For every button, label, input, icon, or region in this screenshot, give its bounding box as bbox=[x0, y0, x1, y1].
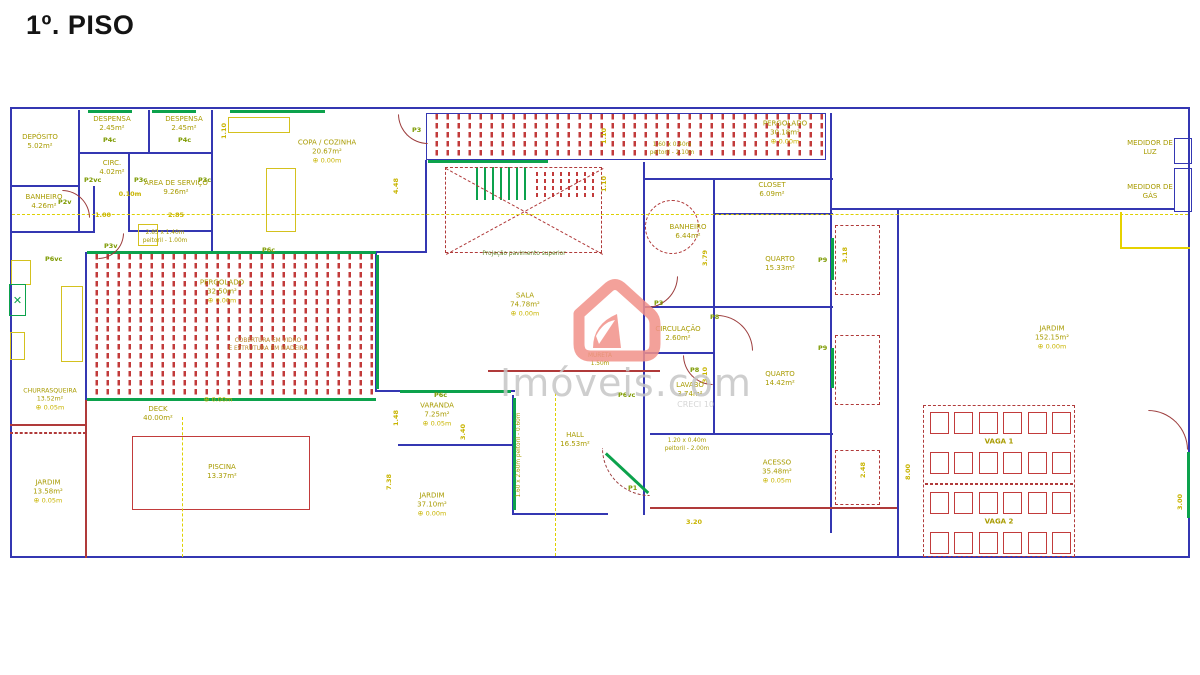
room-label-hall: HALL16.53m² bbox=[560, 431, 590, 449]
dashed-line bbox=[10, 432, 86, 434]
room-label-closet: CLOSET6.09m² bbox=[758, 181, 785, 199]
dimension-text: 3.79 bbox=[701, 250, 709, 266]
window-sill bbox=[428, 160, 548, 163]
room-label-pergolado-dir: PERGOLADO30.18m²⊕ 0.00m bbox=[763, 119, 807, 146]
level-icon: ⊕ bbox=[208, 297, 214, 305]
guide-line bbox=[1120, 212, 1122, 248]
room-label-banheiro-servico: BANHEIRO4.26m² bbox=[26, 193, 63, 211]
paver-block bbox=[930, 412, 949, 434]
paver-block bbox=[979, 452, 998, 474]
level-icon: ⊕ bbox=[313, 157, 319, 165]
grill-glyph: ✕ bbox=[13, 294, 22, 307]
room-label-jardim-fundos: JARDIM13.58m²⊕ 0.05m bbox=[33, 478, 63, 505]
window-note-lavabo: 1.20 x 0.40mpeitoril - 2.00m bbox=[665, 438, 710, 454]
wall-segment bbox=[10, 231, 95, 233]
meter-box-gas bbox=[1174, 168, 1192, 212]
paver-block bbox=[930, 532, 949, 554]
grill-icon: ✕ bbox=[9, 284, 26, 316]
room-label-deposito: DEPÓSITO5.02m² bbox=[22, 133, 58, 151]
centerline bbox=[12, 214, 1188, 215]
wall-segment bbox=[830, 113, 832, 533]
room-label-quarto1: QUARTO15.33m² bbox=[765, 255, 795, 273]
paver-block bbox=[1003, 532, 1022, 554]
door-code-p4c: P4c bbox=[103, 136, 116, 144]
door-code-p6c: P6c bbox=[262, 246, 275, 254]
dimension-text: 1.00 bbox=[95, 211, 111, 219]
dimension-text: 3.20 bbox=[686, 518, 702, 526]
paver-block bbox=[1028, 532, 1047, 554]
wall-segment bbox=[78, 152, 213, 154]
parking-divider bbox=[925, 483, 1073, 485]
wall-segment bbox=[832, 208, 1174, 210]
masonry-line bbox=[650, 507, 897, 509]
window-note-servico: 2.85 x 1.40mpeitoril - 1.00m bbox=[143, 230, 188, 246]
watermark-brand: Imóveis.com bbox=[500, 364, 730, 402]
window-sill bbox=[831, 348, 834, 388]
window-sill bbox=[230, 110, 325, 113]
wall-segment bbox=[148, 110, 150, 152]
wall-segment bbox=[897, 210, 899, 558]
paver-block bbox=[954, 492, 973, 514]
paver-block bbox=[1028, 492, 1047, 514]
page-title: 1º. PISO bbox=[26, 10, 134, 41]
door-code-p6c: P6c bbox=[434, 391, 447, 399]
room-label-churrasqueira: CHURRASQUEIRA13.52m²⊕ 0.05m bbox=[23, 387, 76, 412]
dimension-text: 0.10m bbox=[119, 190, 142, 198]
paver-block bbox=[954, 412, 973, 434]
paver-block bbox=[1052, 492, 1071, 514]
wall-segment bbox=[643, 178, 833, 180]
room-label-despensa1: DESPENSA2.45m² bbox=[93, 115, 131, 133]
kitchen-island bbox=[266, 168, 296, 232]
level-icon: ⊕ bbox=[763, 477, 769, 485]
door-code-p9: P9 bbox=[818, 344, 827, 352]
deck-level: ⊕ 0.00m bbox=[204, 395, 233, 404]
wall-segment bbox=[10, 185, 80, 187]
window-sill bbox=[152, 110, 196, 113]
room-label-medidor-gas: MEDIDOR DE GÁS bbox=[1126, 183, 1174, 201]
paver-block bbox=[1003, 412, 1022, 434]
paver-block bbox=[979, 412, 998, 434]
wall-segment bbox=[425, 160, 427, 252]
paver-block bbox=[1052, 412, 1071, 434]
window-sill bbox=[88, 110, 132, 113]
paver-block bbox=[954, 452, 973, 474]
level-icon: ⊕ bbox=[418, 510, 424, 518]
room-label-piscina: PISCINA13.37m² bbox=[207, 463, 237, 481]
kitchen-counter bbox=[228, 117, 290, 133]
paver-block bbox=[1028, 412, 1047, 434]
fixture-counter bbox=[10, 332, 25, 360]
wall-segment bbox=[512, 513, 608, 515]
watermark: Imóveis.com CRECI 10 bbox=[500, 278, 730, 409]
dimension-text: 1.10 bbox=[600, 176, 608, 192]
paver-block bbox=[1028, 452, 1047, 474]
room-label-jardim-lateral: JARDIM152.15m²⊕ 0.00m bbox=[1035, 324, 1069, 351]
level-icon: ⊕ bbox=[34, 497, 40, 505]
pergolado-note: COBERTURA EM VIDROE ESTRUTURA EM MADEIRA bbox=[228, 338, 307, 354]
door-code-p2v: P2v bbox=[58, 198, 72, 206]
window-sill bbox=[831, 238, 834, 280]
window-sill bbox=[1187, 452, 1190, 518]
ac-projection bbox=[835, 450, 880, 505]
door-code-p1: P1 bbox=[628, 484, 637, 492]
guide-line bbox=[1120, 247, 1190, 249]
dimension-text: 3.00 bbox=[1176, 494, 1184, 510]
door-code-p6vc: P6vc bbox=[45, 255, 62, 263]
door-code-p3: P3 bbox=[412, 126, 421, 134]
room-label-banheiro-suite: BANHEIRO6.44m² bbox=[670, 223, 707, 241]
wall-segment bbox=[398, 444, 514, 446]
room-label-medidor-luz: MEDIDOR DE LUZ bbox=[1126, 139, 1174, 157]
paver-block bbox=[979, 532, 998, 554]
room-label-pergolado-esq: PERGOLADO32.50m²⊕ 0.00m bbox=[200, 278, 244, 305]
dimension-text: 2.48 bbox=[859, 462, 867, 478]
door-code-p2vc: P2vc bbox=[84, 176, 101, 184]
room-label-vaga2: VAGA 2 bbox=[985, 517, 1014, 526]
dimension-text: 2.85 bbox=[168, 211, 184, 219]
wall-segment bbox=[650, 433, 833, 435]
meter-box-luz bbox=[1174, 138, 1192, 164]
level-icon: ⊕ bbox=[36, 404, 42, 412]
room-label-acesso: ACESSO35.48m²⊕ 0.05m bbox=[762, 458, 792, 485]
room-label-copa: COPA / COZINHA20.67m²⊕ 0.00m bbox=[298, 138, 356, 165]
wall-segment bbox=[93, 186, 95, 233]
room-label-deck: DECK40.00m² bbox=[143, 405, 173, 423]
door-code-p4c: P4c bbox=[178, 136, 191, 144]
paver-block bbox=[930, 452, 949, 474]
dimension-text: 3.18 bbox=[841, 247, 849, 263]
stair-projection-note: Projeção pavimento superior bbox=[482, 251, 565, 259]
fixture-counter bbox=[61, 286, 83, 362]
dimension-text: 4.48 bbox=[392, 178, 400, 194]
room-label-despensa2: DESPENSA2.45m² bbox=[165, 115, 203, 133]
pergolado-hatch-left bbox=[87, 254, 375, 398]
window-sill bbox=[400, 390, 511, 393]
level-icon: ⊕ bbox=[771, 138, 777, 146]
paver-block bbox=[1052, 532, 1071, 554]
upper-floor-projection bbox=[445, 167, 602, 253]
house-logo-icon bbox=[563, 278, 667, 362]
paver-block bbox=[1003, 492, 1022, 514]
dimension-text: 8.00 bbox=[904, 464, 912, 480]
room-label-quarto2: QUARTO14.42m² bbox=[765, 370, 795, 388]
dimension-text: 3.40 bbox=[459, 424, 467, 440]
level-icon: ⊕ bbox=[423, 420, 429, 428]
room-label-jardim-frente: JARDIM37.10m²⊕ 0.00m bbox=[417, 491, 447, 518]
window-sill bbox=[376, 255, 379, 389]
parking-grid bbox=[923, 405, 1075, 557]
dimension-text: 1.10 bbox=[220, 123, 228, 139]
centerline bbox=[182, 417, 183, 557]
level-icon: ⊕ bbox=[204, 395, 210, 403]
room-label-varanda: VARANDA7.25m²⊕ 0.05m bbox=[420, 401, 454, 428]
room-label-vaga1: VAGA 1 bbox=[985, 437, 1014, 446]
door-code-p3v: P3v bbox=[104, 242, 118, 250]
centerline bbox=[555, 393, 556, 556]
paver-block bbox=[1003, 452, 1022, 474]
paver-block bbox=[1052, 452, 1071, 474]
paver-block bbox=[954, 532, 973, 554]
level-icon: ⊕ bbox=[1038, 343, 1044, 351]
door-code-p3c: P3c bbox=[134, 176, 147, 184]
dimension-text: 1.48 bbox=[392, 410, 400, 426]
door-code-p3c: P3c bbox=[198, 176, 211, 184]
window-note-hall: 1.60 x 2.60m peitoril - 0.60m bbox=[516, 412, 524, 497]
window-note-suite: 1.60 x 0.40mpeitoril - 2.10m bbox=[650, 142, 695, 158]
dimension-text: 7.38 bbox=[385, 474, 393, 490]
fixture-counter bbox=[11, 260, 31, 285]
ac-projection bbox=[835, 335, 880, 405]
door-code-p9: P9 bbox=[818, 256, 827, 264]
dimension-text: 1.10 bbox=[600, 128, 608, 144]
paver-block bbox=[930, 492, 949, 514]
room-label-circ: CIRC.4.02m² bbox=[99, 159, 124, 177]
masonry-line bbox=[10, 424, 87, 426]
paver-block bbox=[979, 492, 998, 514]
